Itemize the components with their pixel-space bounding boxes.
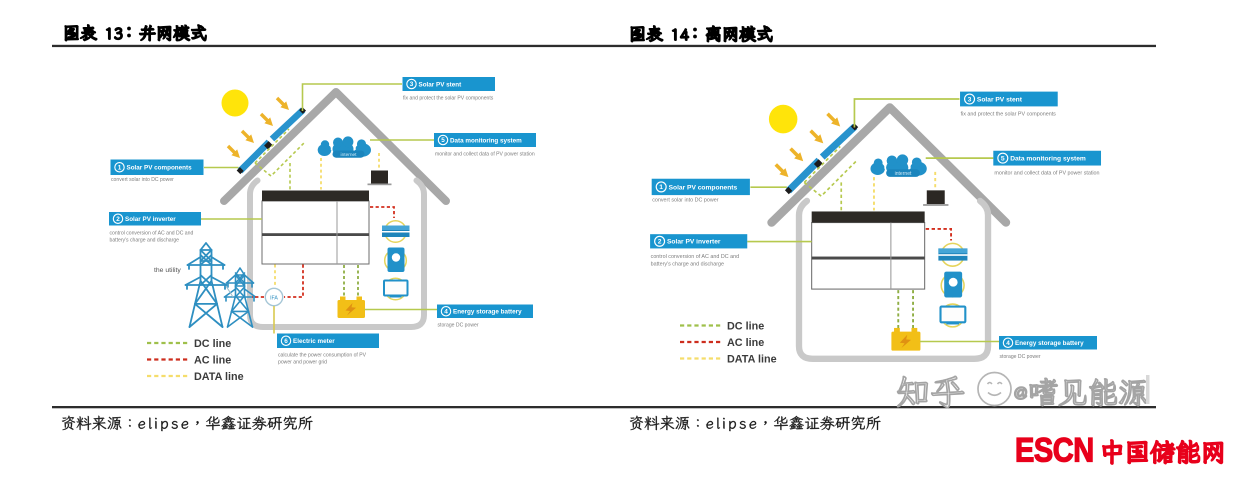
- svg-text:convert solar into DC power: convert solar into DC power: [111, 177, 174, 183]
- svg-text:4: 4: [444, 308, 448, 315]
- svg-text:power and power grid: power and power grid: [278, 360, 327, 366]
- svg-text:DATA line: DATA line: [194, 371, 244, 383]
- svg-text:battery's charge and discharge: battery's charge and discharge: [651, 261, 724, 267]
- svg-text:monitor and collect data of PV: monitor and collect data of PV power sta…: [994, 171, 1099, 177]
- svg-text:DATA line: DATA line: [727, 354, 777, 366]
- svg-text:monitor and collect data of PV: monitor and collect data of PV power sta…: [435, 152, 535, 158]
- svg-text:internet: internet: [341, 152, 358, 158]
- svg-text:3: 3: [968, 96, 972, 103]
- svg-text:3: 3: [410, 81, 414, 88]
- svg-text:control conversion of AC and D: control conversion of AC and DC and: [651, 254, 739, 260]
- svg-text:5: 5: [441, 137, 445, 144]
- svg-text:battery's charge and discharge: battery's charge and discharge: [110, 238, 180, 244]
- svg-text:Solar PV inverter: Solar PV inverter: [667, 239, 721, 246]
- svg-text:2: 2: [116, 216, 120, 223]
- svg-text:1: 1: [118, 164, 122, 171]
- svg-text:2: 2: [658, 239, 662, 246]
- svg-text:AC line: AC line: [727, 337, 764, 349]
- svg-text:fix and protect the solar PV c: fix and protect the solar PV components: [403, 96, 494, 102]
- svg-text:ESCN: ESCN: [1015, 430, 1094, 469]
- svg-text:internet: internet: [895, 171, 912, 177]
- svg-text:Data monitoring system: Data monitoring system: [450, 137, 522, 144]
- svg-text:DC line: DC line: [727, 321, 764, 333]
- svg-text:Solar PV stent: Solar PV stent: [419, 81, 463, 88]
- svg-text:Electric meter: Electric meter: [293, 338, 335, 345]
- svg-text:Solar PV components: Solar PV components: [127, 165, 193, 172]
- svg-text:AC line: AC line: [194, 355, 231, 367]
- svg-text:Energy storage battery: Energy storage battery: [453, 309, 522, 316]
- svg-text:Solar PV inverter: Solar PV inverter: [125, 216, 176, 223]
- svg-text:6: 6: [284, 338, 288, 345]
- svg-text:Solar PV components: Solar PV components: [669, 184, 738, 191]
- svg-text:control conversion of AC and D: control conversion of AC and DC and: [110, 231, 194, 237]
- svg-text:5: 5: [1001, 155, 1005, 162]
- svg-text:the utility: the utility: [154, 267, 181, 274]
- svg-text:storage DC power: storage DC power: [1000, 354, 1041, 360]
- svg-text:storage DC power: storage DC power: [438, 323, 479, 329]
- svg-text:Solar PV stent: Solar PV stent: [977, 96, 1023, 103]
- svg-text:Energy storage battery: Energy storage battery: [1015, 340, 1084, 347]
- svg-text:4: 4: [1006, 340, 1010, 347]
- svg-text:fix and protect the solar PV c: fix and protect the solar PV components: [961, 111, 1057, 117]
- svg-text:DC line: DC line: [194, 338, 231, 350]
- svg-text:calculate the power consumptio: calculate the power consumption of PV: [278, 353, 367, 359]
- svg-text:Data monitoring system: Data monitoring system: [1010, 156, 1086, 163]
- svg-text:convert solar into DC power: convert solar into DC power: [652, 197, 719, 203]
- svg-text:1: 1: [659, 184, 663, 191]
- svg-text:IFA: IFA: [270, 295, 278, 301]
